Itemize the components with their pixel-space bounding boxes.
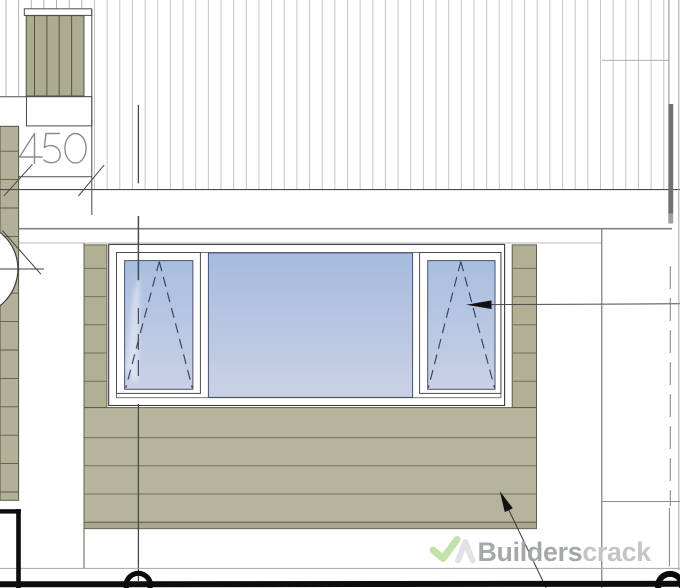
svg-text:Builderscrack: Builderscrack [478,537,652,567]
